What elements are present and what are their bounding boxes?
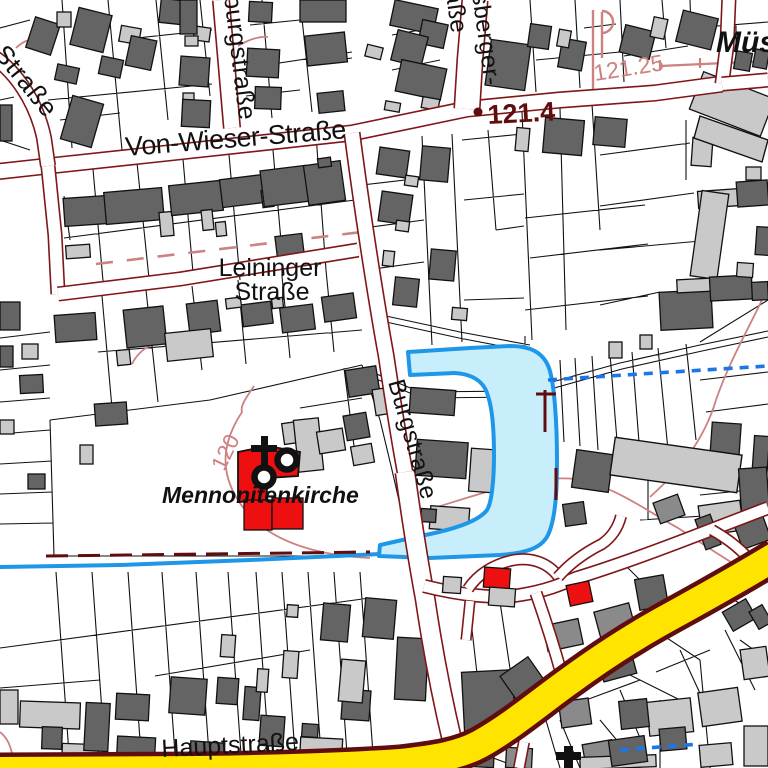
svg-text:Müs: Müs [716, 26, 768, 59]
svg-text:Straße: Straße [234, 278, 309, 306]
svg-text:121.4: 121.4 [487, 96, 556, 129]
svg-text:Mennonitenkirche: Mennonitenkirche [162, 482, 359, 508]
